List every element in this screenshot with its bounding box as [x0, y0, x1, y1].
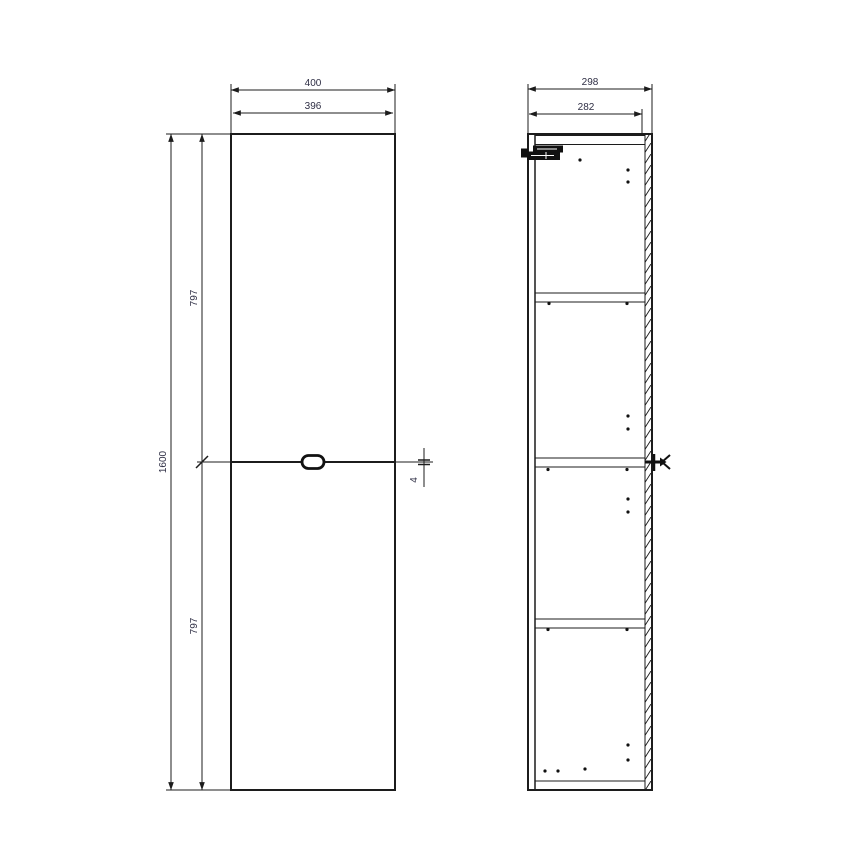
side-section-view: 298 282 [521, 77, 670, 790]
drawing-canvas: 400 396 1600 797 797 4 [0, 0, 868, 868]
pin-hole-dot [547, 302, 550, 305]
pin-hole-dot [626, 414, 629, 417]
pin-hole-dot [625, 468, 628, 471]
dim-label-height-lower: 797 [189, 617, 200, 634]
cabinet-technical-drawing: 400 396 1600 797 797 4 [0, 0, 868, 868]
pin-hole-dot [543, 769, 546, 772]
shelf-middle [535, 458, 645, 467]
bottom-panel-hatch [535, 781, 645, 790]
pin-hole-dot [556, 769, 559, 772]
dim-label-depth-outer: 298 [582, 77, 599, 88]
pin-hole-dot [626, 497, 629, 500]
pin-hole-dot [626, 168, 629, 171]
shelf-pin-holes [543, 158, 629, 772]
pin-hole-dot [583, 767, 586, 770]
door-handle-icon [302, 456, 324, 469]
dim-label-width-inner: 396 [305, 101, 322, 112]
dim-label-door-gap: 4 [409, 477, 420, 483]
side-cabinet-outline [528, 134, 652, 790]
pin-hole-dot [578, 158, 581, 161]
pin-hole-dot [626, 743, 629, 746]
dim-label-height-total: 1600 [158, 450, 169, 473]
pin-hole-dot [626, 180, 629, 183]
shelf-upper [535, 293, 645, 302]
pin-hole-dot [626, 427, 629, 430]
dim-label-width-outer: 400 [305, 78, 322, 89]
dim-label-height-upper: 797 [189, 289, 200, 306]
top-panel-hatch [535, 136, 645, 145]
pin-hole-dot [626, 758, 629, 761]
pin-hole-dot [625, 628, 628, 631]
pin-hole-dot [546, 468, 549, 471]
pin-hole-dot [546, 628, 549, 631]
front-view: 400 396 1600 797 797 4 [158, 78, 433, 790]
pin-hole-dot [626, 510, 629, 513]
pin-hole-dot [625, 302, 628, 305]
dim-label-depth-inner: 282 [578, 102, 595, 113]
shelf-lower [535, 619, 645, 628]
